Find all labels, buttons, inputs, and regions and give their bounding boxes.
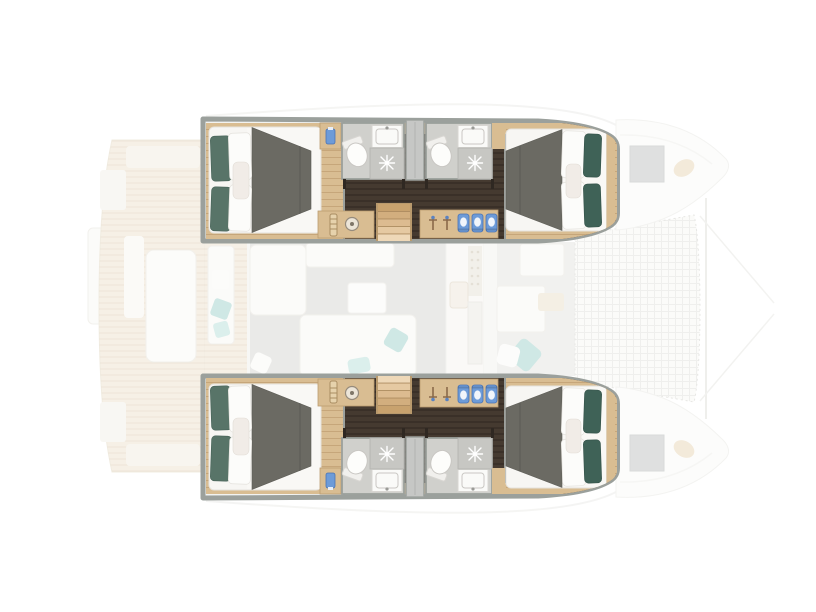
galley-sink (450, 282, 468, 308)
salon-bench (306, 243, 394, 267)
faucet-icon (385, 126, 388, 129)
transom-locker-starboard (126, 444, 200, 466)
bow-hatch (630, 146, 664, 182)
stern-step-port (100, 170, 126, 210)
forward-seat-box (520, 244, 564, 276)
companionway-stairs (376, 203, 412, 242)
bottle-icon (326, 129, 335, 144)
faucet-icon (471, 126, 474, 129)
shower-sparkle-icon (468, 156, 483, 171)
washbasin-icon (486, 214, 497, 232)
compass-needle-icon (350, 222, 354, 226)
starboard-bow (616, 387, 729, 497)
forward-grill (538, 293, 564, 311)
aft-bathroom (342, 123, 404, 179)
trampoline-mesh (575, 215, 700, 402)
corridor-counter (492, 123, 505, 149)
cockpit-bench-aft (124, 236, 144, 318)
catamaran-floorplan (0, 0, 816, 612)
floorplan-canvas (0, 0, 816, 612)
aft-cabin-bed (209, 127, 321, 233)
forward-seat-box (497, 286, 545, 332)
salon (205, 242, 618, 376)
lumbar-pillow-icon (566, 164, 581, 198)
galley-oven (468, 302, 482, 364)
transom-locker-port (126, 146, 200, 168)
port-hull (203, 119, 618, 242)
aft-deck (88, 140, 205, 472)
vanity-counter (420, 210, 498, 238)
shower-sparkle-icon (380, 156, 395, 171)
fore-cabin-bed (506, 127, 615, 233)
galley-appliance (468, 246, 482, 296)
teal-pillow-icon (583, 134, 601, 178)
cockpit-table (146, 250, 196, 362)
starboard-hull (203, 375, 618, 498)
port-bow (616, 120, 729, 230)
white-pillow-icon (212, 270, 229, 289)
lumbar-pillow-icon (233, 162, 249, 199)
salon-chaise (250, 245, 306, 315)
stern-step-starboard (100, 402, 126, 442)
fore-bathroom (426, 123, 492, 179)
hull-interior (206, 120, 617, 242)
salon-walkway (484, 242, 497, 376)
salon-table (348, 283, 386, 313)
washbasin-icon (458, 214, 469, 232)
bottle-cap-icon (328, 127, 333, 130)
inboard-shelf (318, 211, 374, 238)
bowsprit-lines (700, 216, 774, 401)
washbasin-icon (472, 214, 483, 232)
ladder-icon (330, 214, 337, 236)
teal-pillow-icon (583, 184, 601, 228)
